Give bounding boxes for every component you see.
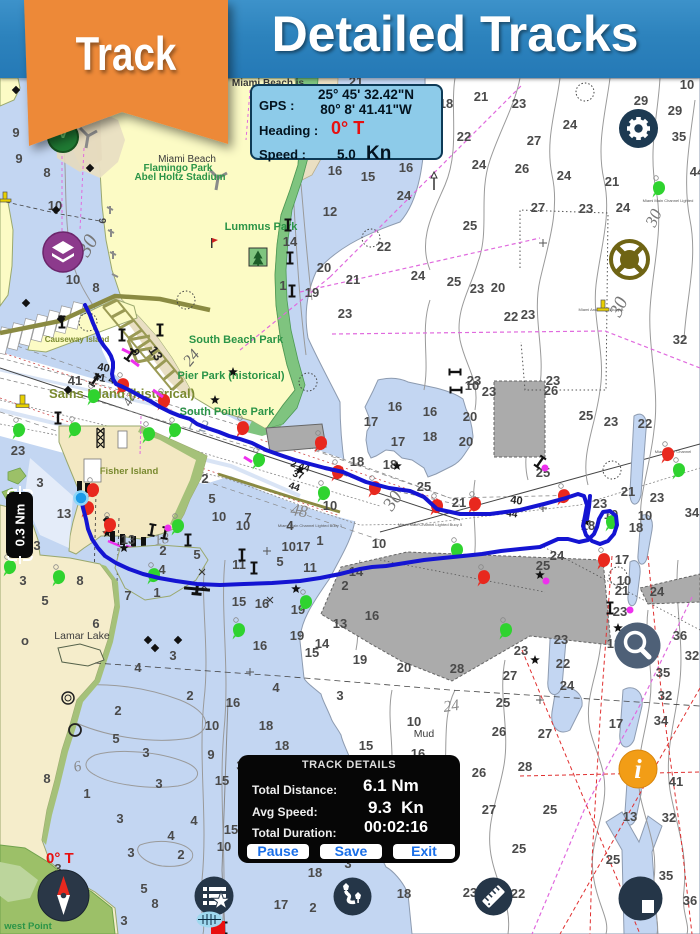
svg-text:4̶8: 4̶8 xyxy=(289,500,309,521)
svg-text:22: 22 xyxy=(638,416,652,431)
svg-text:3: 3 xyxy=(116,811,123,826)
svg-text:17: 17 xyxy=(609,716,623,731)
svg-text:23: 23 xyxy=(514,643,528,658)
svg-text:25: 25 xyxy=(496,695,510,710)
svg-text:21: 21 xyxy=(615,583,629,598)
svg-text:24: 24 xyxy=(411,268,426,283)
svg-text:10: 10 xyxy=(372,536,386,551)
svg-text:23: 23 xyxy=(11,443,25,458)
svg-text:6: 6 xyxy=(92,616,99,631)
svg-text:18: 18 xyxy=(397,886,411,901)
svg-text:23: 23 xyxy=(512,96,526,111)
svg-text:8: 8 xyxy=(92,280,99,295)
svg-text:Miami Main Channel Lighted Buo: Miami Main Channel Lighted Buoy 5 xyxy=(398,522,463,527)
svg-text:9: 9 xyxy=(96,218,107,224)
svg-text:South Beach Park: South Beach Park xyxy=(189,334,284,346)
svg-text:35: 35 xyxy=(672,129,686,144)
svg-text:26: 26 xyxy=(492,724,506,739)
svg-text:24: 24 xyxy=(616,200,631,215)
svg-text:26: 26 xyxy=(515,161,529,176)
svg-text:18: 18 xyxy=(350,454,364,469)
svg-text:20: 20 xyxy=(463,409,477,424)
svg-text:27: 27 xyxy=(527,133,541,148)
svg-text:16: 16 xyxy=(365,608,379,623)
svg-text:1: 1 xyxy=(83,786,90,801)
svg-text:14: 14 xyxy=(283,234,298,249)
svg-text:20: 20 xyxy=(491,280,505,295)
svg-text:24: 24 xyxy=(563,117,578,132)
svg-text:19: 19 xyxy=(353,652,367,667)
svg-text:2: 2 xyxy=(177,847,184,862)
svg-text:10: 10 xyxy=(465,378,479,393)
svg-text:24: 24 xyxy=(650,584,665,599)
svg-text:Mud: Mud xyxy=(414,728,435,740)
svg-text:44: 44 xyxy=(690,164,700,179)
svg-text:32: 32 xyxy=(662,810,676,825)
svg-text:South Pointe Park: South Pointe Park xyxy=(180,406,276,418)
svg-text:5: 5 xyxy=(41,593,48,608)
svg-text:36: 36 xyxy=(683,893,697,908)
svg-text:3: 3 xyxy=(142,745,149,760)
svg-text:3: 3 xyxy=(120,913,127,928)
svg-text:21: 21 xyxy=(621,484,635,499)
svg-text:2: 2 xyxy=(186,688,193,703)
svg-text:10: 10 xyxy=(680,77,694,92)
svg-text:25: 25 xyxy=(606,852,620,867)
svg-text:15: 15 xyxy=(215,773,229,788)
svg-text:7: 7 xyxy=(124,588,131,603)
svg-text:15: 15 xyxy=(361,169,375,184)
svg-text:22: 22 xyxy=(504,309,518,324)
svg-text:Miami Main Channel Lighted Buo: Miami Main Channel Lighted Buoy 1 xyxy=(278,523,343,528)
svg-text:10: 10 xyxy=(212,509,226,524)
svg-text:4: 4 xyxy=(190,813,198,828)
svg-text:21: 21 xyxy=(346,272,360,287)
svg-text:41: 41 xyxy=(669,774,683,789)
svg-text:3: 3 xyxy=(19,573,26,588)
svg-text:19: 19 xyxy=(290,628,304,643)
svg-text:27: 27 xyxy=(503,668,517,683)
svg-text:22: 22 xyxy=(457,129,471,144)
svg-text:24: 24 xyxy=(560,678,575,693)
svg-text:15: 15 xyxy=(232,594,246,609)
svg-text:22: 22 xyxy=(377,239,391,254)
svg-text:23: 23 xyxy=(613,604,627,619)
svg-text:2: 2 xyxy=(114,703,121,718)
svg-text:5: 5 xyxy=(112,731,119,746)
svg-text:5: 5 xyxy=(208,491,215,506)
svg-text:8: 8 xyxy=(76,573,83,588)
svg-text:24: 24 xyxy=(442,697,460,716)
svg-text:4: 4 xyxy=(167,828,175,843)
svg-text:15: 15 xyxy=(305,645,319,660)
svg-text:4: 4 xyxy=(272,680,280,695)
svg-text:2: 2 xyxy=(309,900,316,915)
svg-text:26: 26 xyxy=(544,383,558,398)
svg-text:20: 20 xyxy=(317,260,331,275)
svg-text:5: 5 xyxy=(193,547,200,562)
svg-text:16: 16 xyxy=(399,160,413,175)
svg-text:Lamar Lake: Lamar Lake xyxy=(54,630,110,642)
svg-text:32: 32 xyxy=(658,688,672,703)
svg-text:3: 3 xyxy=(336,688,343,703)
svg-text:11: 11 xyxy=(232,557,246,572)
svg-text:25: 25 xyxy=(543,802,557,817)
svg-text:23: 23 xyxy=(593,496,607,511)
svg-text:25: 25 xyxy=(512,841,526,856)
svg-text:27: 27 xyxy=(482,802,496,817)
svg-text:27: 27 xyxy=(531,200,545,215)
svg-text:23: 23 xyxy=(650,490,664,505)
svg-text:21: 21 xyxy=(474,89,488,104)
svg-text:34: 34 xyxy=(685,505,700,520)
svg-text:3: 3 xyxy=(127,845,134,860)
svg-text:i: i xyxy=(634,754,642,784)
svg-text:23: 23 xyxy=(554,632,568,647)
svg-text:29: 29 xyxy=(634,93,648,108)
svg-text:Miami Main Channel Lighted: Miami Main Channel Lighted xyxy=(643,198,694,203)
svg-text:13: 13 xyxy=(623,809,637,824)
svg-text:24: 24 xyxy=(397,188,412,203)
svg-text:32: 32 xyxy=(685,648,699,663)
svg-text:1017: 1017 xyxy=(282,539,311,554)
svg-text:1: 1 xyxy=(279,278,286,293)
svg-text:23: 23 xyxy=(338,306,352,321)
svg-text:16: 16 xyxy=(226,695,240,710)
svg-text:34: 34 xyxy=(654,713,669,728)
svg-text:26: 26 xyxy=(472,765,486,780)
svg-text:25: 25 xyxy=(447,274,461,289)
svg-text:5: 5 xyxy=(276,554,283,569)
svg-text:28: 28 xyxy=(450,661,464,676)
svg-text:10: 10 xyxy=(407,714,421,729)
svg-text:19: 19 xyxy=(305,285,319,300)
svg-text:24: 24 xyxy=(557,168,572,183)
svg-text:10: 10 xyxy=(638,508,652,523)
svg-text:16: 16 xyxy=(388,399,402,414)
svg-text:11: 11 xyxy=(303,560,317,575)
svg-text:17: 17 xyxy=(615,552,629,567)
svg-text:18: 18 xyxy=(308,865,322,880)
svg-text:24: 24 xyxy=(472,157,487,172)
svg-text:13: 13 xyxy=(333,616,347,631)
svg-text:25: 25 xyxy=(463,218,477,233)
svg-text:2: 2 xyxy=(201,471,208,486)
svg-text:18: 18 xyxy=(275,738,289,753)
svg-text:16: 16 xyxy=(253,638,267,653)
svg-text:22: 22 xyxy=(556,656,570,671)
svg-text:15: 15 xyxy=(359,738,373,753)
svg-text:21: 21 xyxy=(605,174,619,189)
svg-text:10: 10 xyxy=(323,498,337,513)
svg-text:29: 29 xyxy=(668,103,682,118)
svg-text:west Point: west Point xyxy=(3,921,52,932)
svg-text:36: 36 xyxy=(673,628,687,643)
svg-text:23: 23 xyxy=(470,281,484,296)
svg-text:25: 25 xyxy=(579,408,593,423)
svg-text:9: 9 xyxy=(207,747,214,762)
svg-text:25: 25 xyxy=(417,479,431,494)
svg-text:20: 20 xyxy=(459,434,473,449)
svg-text:28: 28 xyxy=(518,759,532,774)
svg-text:Abel Holtz Stadium: Abel Holtz Stadium xyxy=(134,172,225,183)
svg-text:23: 23 xyxy=(482,384,496,399)
svg-text:17: 17 xyxy=(274,897,288,912)
svg-text:Fisher Island: Fisher Island xyxy=(100,466,159,477)
svg-text:13: 13 xyxy=(57,506,71,521)
svg-text:8: 8 xyxy=(151,896,158,911)
svg-text:40: 40 xyxy=(510,494,524,508)
svg-text:24: 24 xyxy=(550,548,565,563)
svg-text:4: 4 xyxy=(134,660,142,675)
svg-text:16: 16 xyxy=(255,596,269,611)
svg-text:17: 17 xyxy=(364,414,378,429)
svg-text:13: 13 xyxy=(121,532,135,547)
svg-text:2: 2 xyxy=(341,578,348,593)
svg-text:15: 15 xyxy=(224,822,238,837)
svg-text:16: 16 xyxy=(328,163,342,178)
svg-text:32: 32 xyxy=(673,332,687,347)
svg-text:5: 5 xyxy=(140,881,147,896)
svg-text:23: 23 xyxy=(604,414,618,429)
svg-text:3: 3 xyxy=(169,648,176,663)
svg-text:18: 18 xyxy=(423,429,437,444)
svg-text:8: 8 xyxy=(43,771,50,786)
svg-text:18: 18 xyxy=(259,718,273,733)
svg-text:23: 23 xyxy=(521,307,535,322)
svg-text:25: 25 xyxy=(536,558,550,573)
svg-text:o: o xyxy=(21,633,29,648)
svg-text:7: 7 xyxy=(244,510,251,525)
svg-text:20: 20 xyxy=(397,660,411,675)
svg-text:16: 16 xyxy=(423,404,437,419)
svg-text:10: 10 xyxy=(217,839,231,854)
svg-text:1: 1 xyxy=(316,533,323,548)
svg-text:12: 12 xyxy=(323,204,337,219)
svg-text:21: 21 xyxy=(452,495,466,510)
svg-text:10: 10 xyxy=(205,718,219,733)
svg-text:17: 17 xyxy=(391,434,405,449)
svg-text:1: 1 xyxy=(153,585,160,600)
svg-text:10: 10 xyxy=(66,272,80,287)
svg-text:23: 23 xyxy=(579,201,593,216)
svg-text:3: 3 xyxy=(155,776,162,791)
svg-text:27: 27 xyxy=(538,726,552,741)
